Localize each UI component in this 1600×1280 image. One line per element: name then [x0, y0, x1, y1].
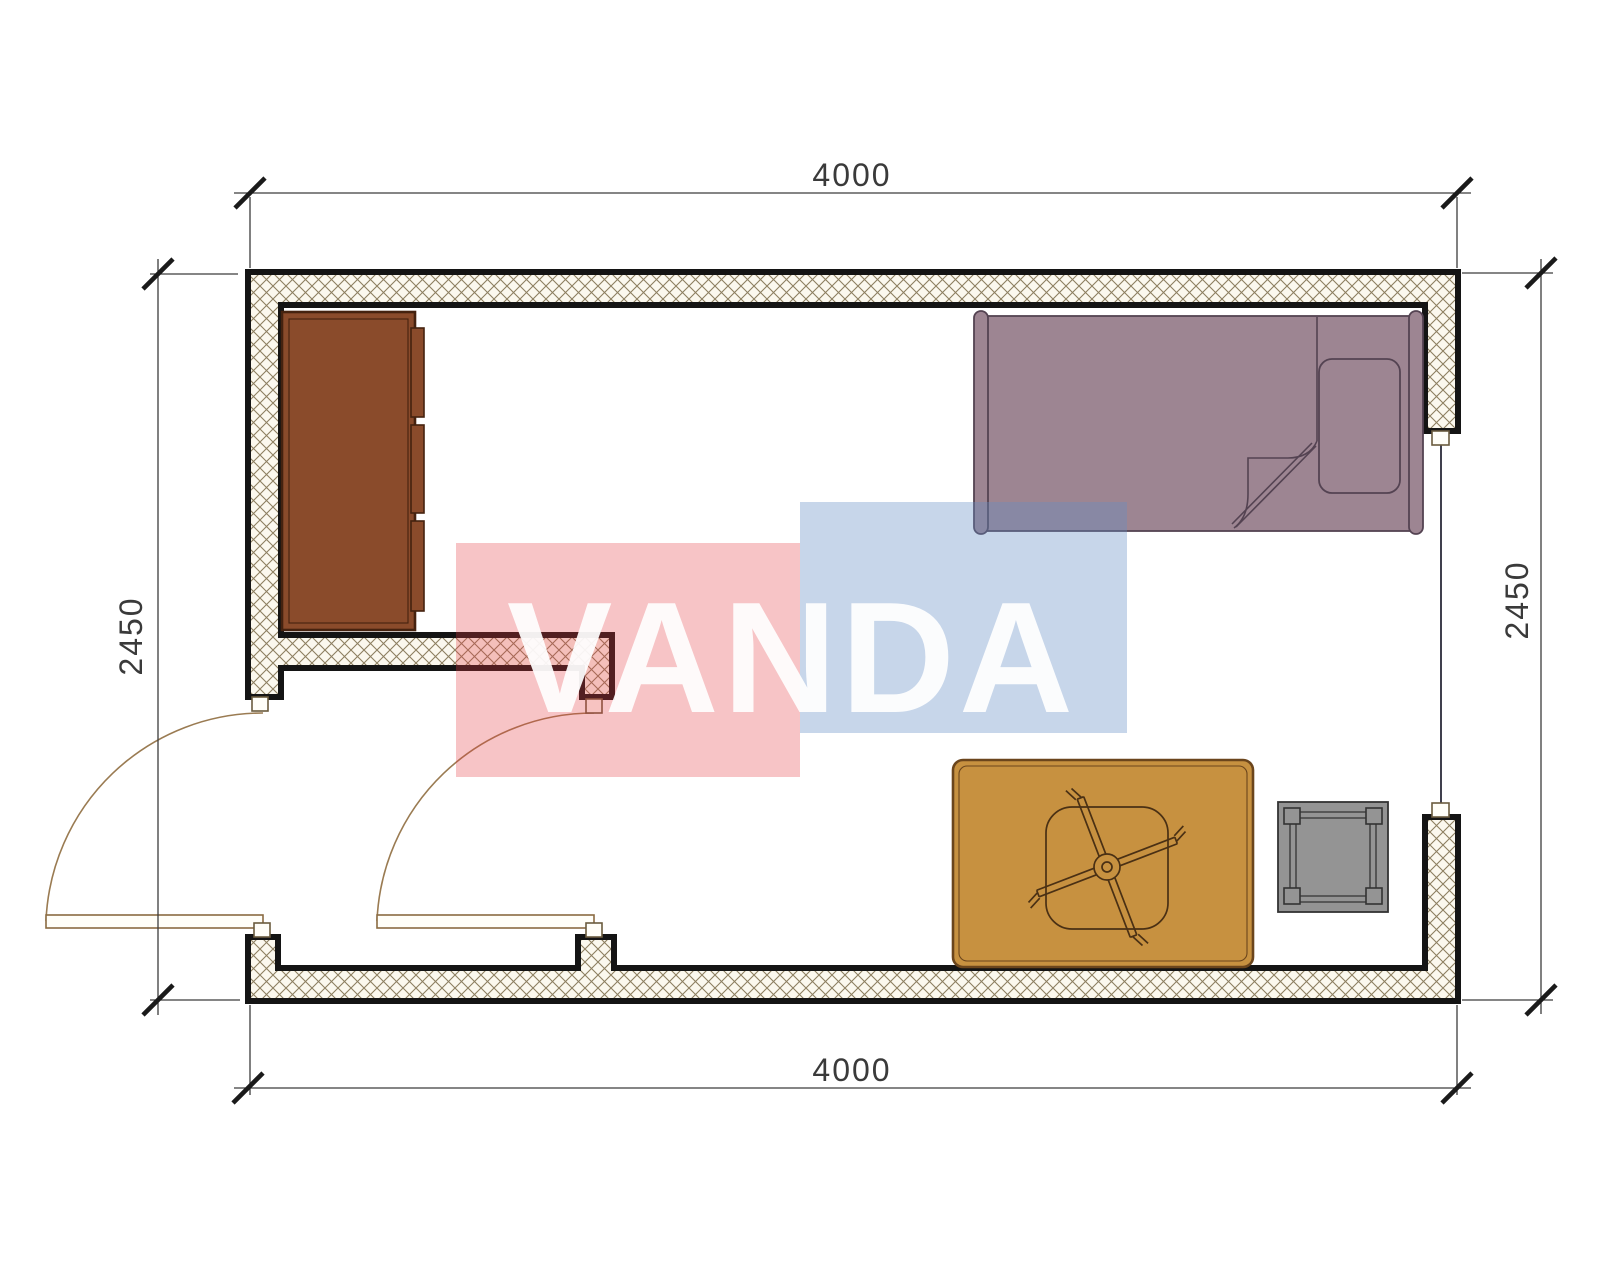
wardrobe-body	[282, 312, 415, 630]
bed-footboard	[974, 311, 988, 534]
bed-headboard	[1409, 311, 1423, 534]
dim-label-bottom: 4000	[812, 1052, 891, 1088]
interior-door-leaf	[377, 915, 594, 928]
wardrobe-door-panel	[411, 521, 424, 611]
dimension-left: 2450	[113, 259, 240, 1015]
floor-plan-page: VANDA 4000 4000 2450 2450	[0, 0, 1600, 1280]
entry-door-jamb-bottom	[254, 923, 270, 937]
dim-label-left: 2450	[113, 596, 149, 675]
window-jamb-bottom	[1432, 803, 1449, 817]
floor-plan-canvas: VANDA 4000 4000 2450 2450	[0, 0, 1600, 1280]
entry-door-swing-arc	[46, 713, 263, 921]
dimension-bottom: 4000	[233, 1005, 1472, 1103]
window	[1432, 431, 1449, 817]
dim-label-right: 2450	[1499, 560, 1535, 639]
stool-leg	[1366, 888, 1382, 904]
wardrobe	[282, 312, 424, 630]
watermark: VANDA	[456, 502, 1127, 777]
entry-door-jamb-top	[252, 697, 268, 711]
wardrobe-door-panel	[411, 425, 424, 513]
bed-pillow	[1319, 359, 1400, 493]
dimension-right: 2450	[1462, 258, 1556, 1015]
stool-leg	[1366, 808, 1382, 824]
interior-door-jamb-bottom	[586, 923, 602, 937]
stool-leg	[1284, 808, 1300, 824]
dim-label-top: 4000	[812, 157, 891, 193]
entry-door-leaf	[46, 915, 263, 928]
dimension-top: 4000	[234, 157, 1472, 268]
watermark-text: VANDA	[507, 570, 1077, 746]
stool	[1278, 802, 1388, 912]
wardrobe-door-panel	[411, 328, 424, 417]
bed	[974, 311, 1423, 534]
stool-leg	[1284, 888, 1300, 904]
window-jamb-top	[1432, 431, 1449, 445]
wall-bottom-right-lower	[248, 817, 1458, 1001]
